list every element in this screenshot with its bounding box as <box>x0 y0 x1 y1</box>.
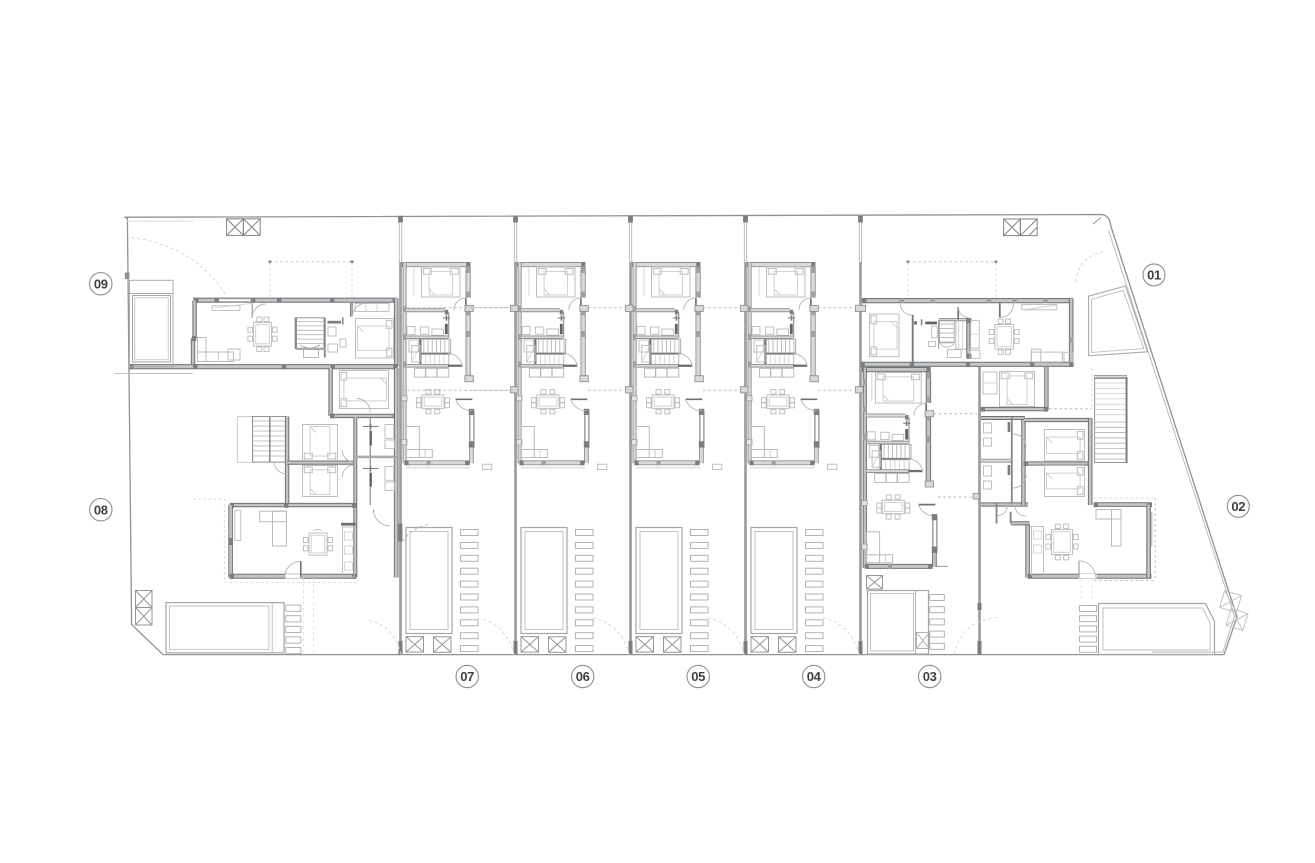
svg-text:04: 04 <box>807 669 822 684</box>
svg-text:02: 02 <box>1231 499 1245 514</box>
svg-text:09: 09 <box>94 276 108 291</box>
svg-text:08: 08 <box>94 502 108 517</box>
svg-text:01: 01 <box>1147 267 1161 282</box>
svg-text:06: 06 <box>576 669 590 684</box>
svg-text:03: 03 <box>923 669 937 684</box>
svg-text:07: 07 <box>460 669 474 684</box>
svg-text:05: 05 <box>691 669 705 684</box>
